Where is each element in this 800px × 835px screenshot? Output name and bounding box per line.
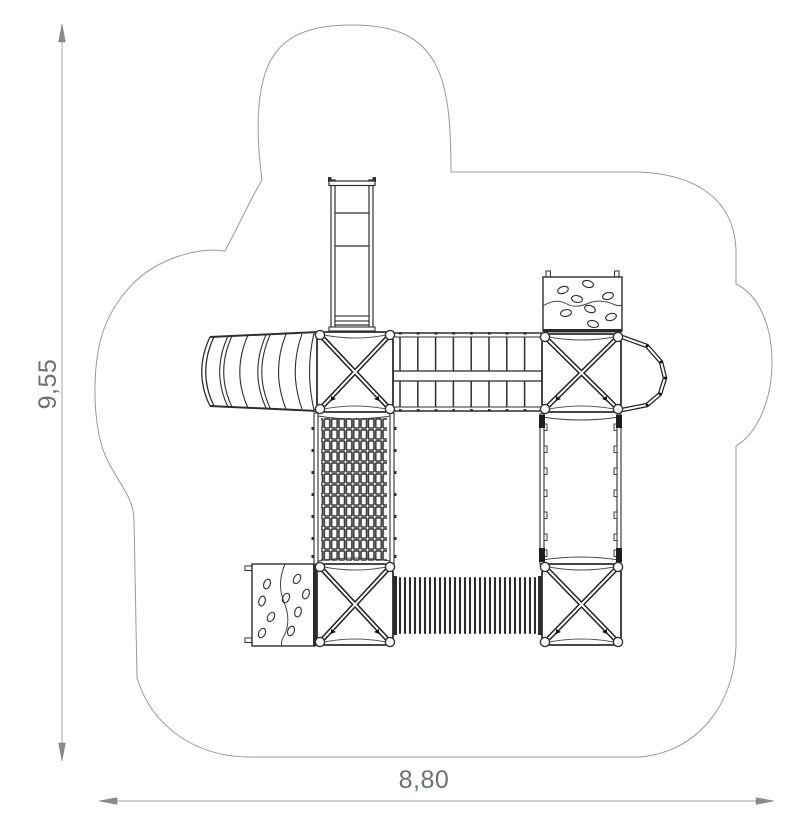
arrow-down-icon <box>59 743 66 761</box>
wave-slide <box>202 332 318 411</box>
arrow-right-icon <box>756 798 774 805</box>
lookout-balcony <box>622 337 666 410</box>
safety-zone-outline <box>95 25 772 757</box>
arrow-left-icon <box>99 798 117 805</box>
arrow-up-icon <box>59 24 66 42</box>
rock-climbing-wall-west <box>245 564 316 646</box>
rail-walkway <box>539 414 622 564</box>
access-ladder <box>328 177 376 332</box>
platform-tower-sw <box>315 562 394 646</box>
horizontal-dimension <box>99 798 774 805</box>
width-dimension-label: 8,80 <box>384 765 464 795</box>
platform-tower-ne <box>540 332 622 413</box>
climbing-net <box>312 413 397 565</box>
crawl-tunnel <box>394 576 542 635</box>
platform-tower-se <box>540 562 622 646</box>
plan-drawing-stage: 9,55 8,80 <box>0 0 800 835</box>
height-dimension-label: 9,55 <box>33 344 63 424</box>
rung-bridge <box>393 332 542 412</box>
rock-climbing-wall-north <box>543 271 622 332</box>
platform-tower-nw <box>315 330 394 413</box>
playground-plan-svg <box>0 0 800 835</box>
